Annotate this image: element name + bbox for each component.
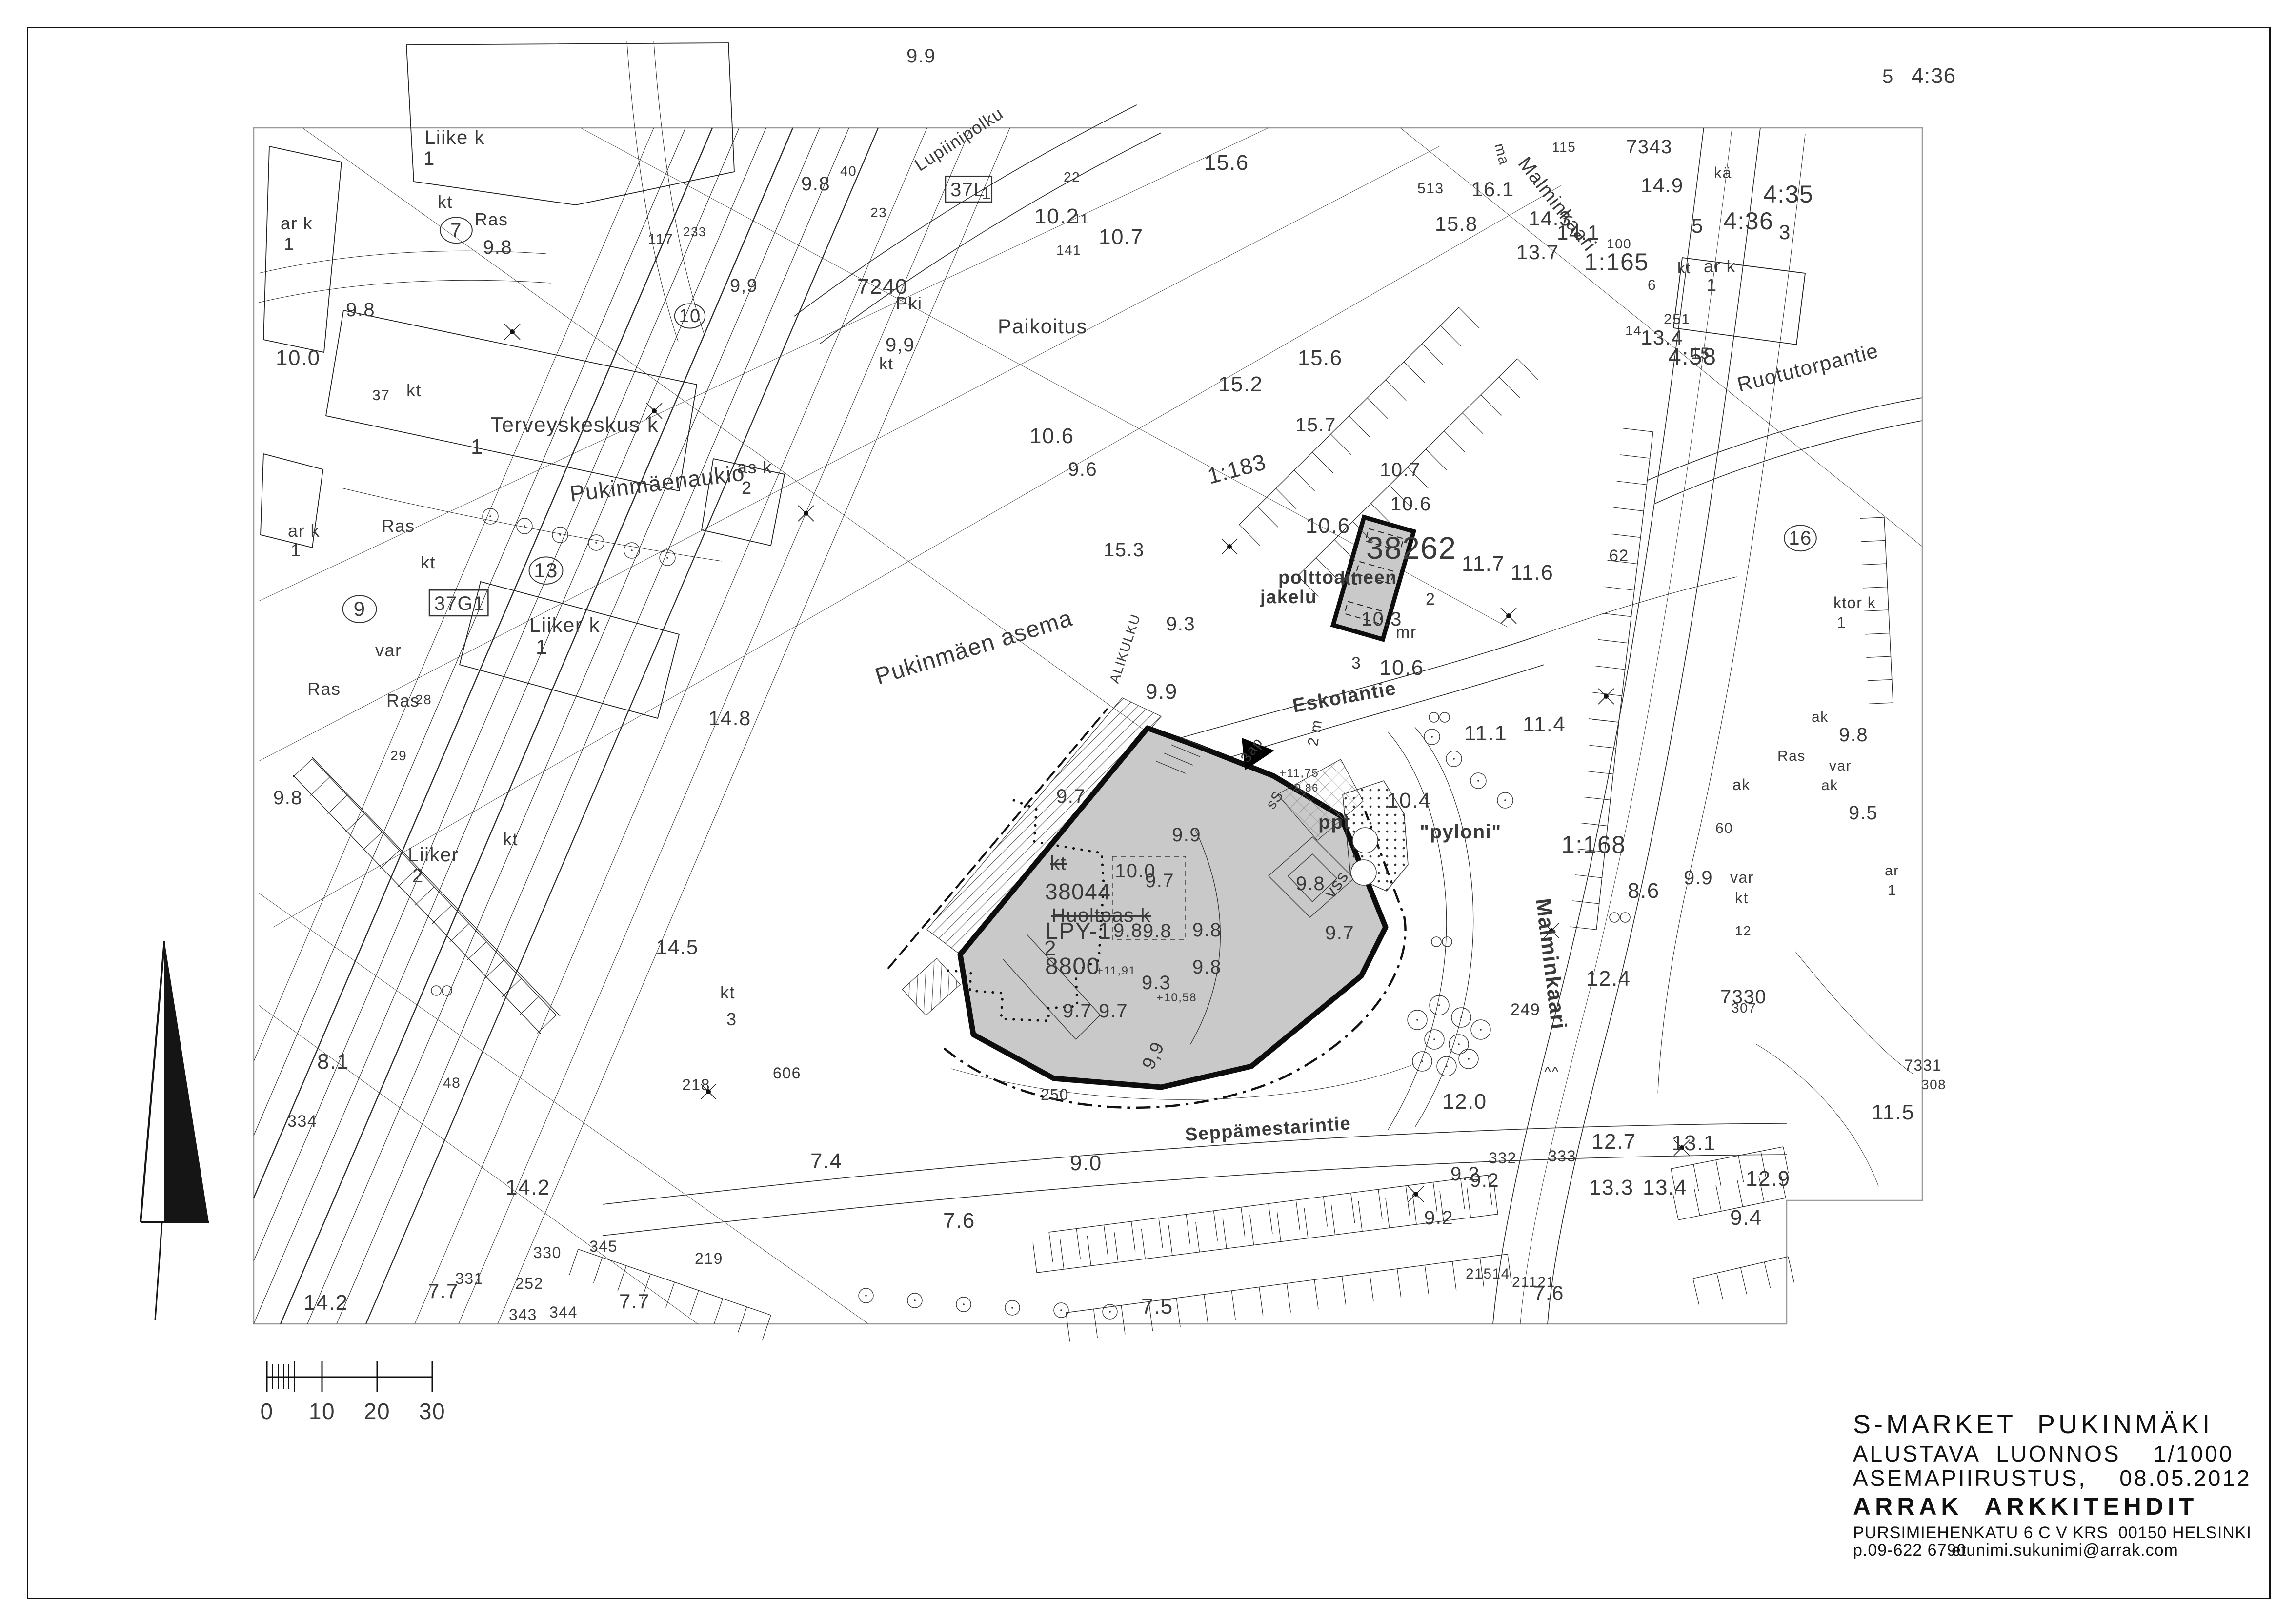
map-label: 29 [390,748,407,763]
svg-text:2: 2 [412,865,424,887]
map-label: 1 [982,184,991,203]
map-label: 10.7 [1380,459,1421,481]
svg-text:16: 16 [1789,528,1812,549]
svg-text:13: 13 [534,559,558,582]
svg-text:4:35: 4:35 [1763,181,1813,208]
svg-text:251: 251 [1664,311,1691,327]
svg-text:13.7: 13.7 [1516,241,1559,264]
firm-email: etunimi.sukunimi@arrak.com [1952,1541,2178,1560]
svg-text:kt: kt [1340,568,1358,589]
svg-text:ar k: ar k [288,521,320,541]
svg-text:kt: kt [1735,889,1749,907]
map-label: kt [1677,259,1691,277]
svg-text:11: 11 [1073,211,1089,226]
svg-text:11.4: 11.4 [1523,712,1566,736]
map-label: 37 [372,387,390,404]
svg-text:ktor k: ktor k [1833,594,1876,611]
svg-text:ar k: ar k [1704,256,1736,276]
map-label: 333 [1548,1147,1576,1165]
svg-text:7.6: 7.6 [1533,1281,1564,1304]
svg-text:9.7: 9.7 [1099,1000,1128,1022]
map-label: 9.8 [1192,956,1222,978]
map-label: 219 [695,1250,723,1267]
svg-text:8800: 8800 [1045,954,1100,979]
svg-text:115: 115 [1552,140,1576,155]
map-label: 5 [1692,214,1704,237]
map-label: 14 [1625,323,1642,338]
map-label: kt [1050,853,1067,874]
svg-text:9.8: 9.8 [1296,873,1325,894]
map-label: 7.5 [1141,1295,1173,1319]
svg-text:9,9: 9,9 [730,276,758,296]
map-label: ar k [1704,256,1736,276]
map-label: Ras [382,516,415,536]
svg-text:334: 334 [287,1112,317,1131]
svg-text:1: 1 [536,635,548,658]
svg-text:Ras: Ras [307,679,341,699]
map-label: 7 [440,217,472,243]
svg-text:mr: mr [1396,623,1417,642]
svg-text:2: 2 [1426,590,1435,609]
map-label: kt [1735,889,1749,907]
svg-text:1: 1 [291,540,302,560]
svg-text:7.7: 7.7 [619,1290,650,1313]
map-label: Pukinmäen asema [872,605,1076,690]
map-label: 1 [423,148,435,169]
map-label: Ras [307,679,341,699]
svg-text:11.6: 11.6 [1511,561,1553,585]
map-label: 331 [455,1270,483,1287]
map-label: 13 [529,557,563,584]
svg-text:38044: 38044 [1045,879,1111,904]
svg-text:9.5: 9.5 [1849,802,1878,824]
drawing-stage: ALUSTAVA LUONNOS 1/1000 [1853,1441,2234,1467]
map-label: 14.2 [505,1176,550,1199]
svg-text:8.6: 8.6 [1628,879,1660,903]
svg-text:var: var [375,640,402,660]
svg-text:48: 48 [443,1075,461,1091]
map-label: 38262 [1366,530,1456,566]
svg-text:9.9: 9.9 [1146,680,1178,704]
map-label: 10 [675,304,705,328]
map-label: 9.9 [1146,680,1178,704]
map-label: ktor k [1833,594,1876,611]
svg-text:9.0: 9.0 [1070,1151,1102,1175]
map-label: 12.7 [1591,1130,1636,1154]
svg-text:6: 6 [1648,277,1656,293]
svg-text:15.7: 15.7 [1295,414,1336,436]
svg-text:332: 332 [1489,1149,1517,1167]
map-label: 9.8 [273,787,302,809]
map-label: 16 [1784,525,1816,551]
svg-text:15.2: 15.2 [1218,372,1263,396]
map-label: 218 [682,1076,710,1094]
map-label: 13.4 [1643,1176,1688,1199]
svg-text:Liiker k: Liiker k [529,613,600,636]
svg-text:1: 1 [982,184,991,203]
svg-text:10.7: 10.7 [1380,459,1421,481]
map-label: 7.6 [1533,1281,1564,1304]
map-label: Liiker [408,844,459,866]
svg-text:250: 250 [1041,1086,1069,1103]
svg-text:9.9: 9.9 [1684,867,1713,889]
svg-text:11.1: 11.1 [1464,721,1507,745]
svg-text:9.8: 9.8 [273,787,302,809]
map-label: 8.1 [317,1050,349,1074]
map-label: 513 [1417,181,1444,197]
svg-text:ar: ar [1885,863,1899,879]
map-label: 9.9 [1172,824,1201,846]
svg-text:38262: 38262 [1366,530,1456,566]
map-label: 6 [1648,277,1656,293]
map-label: 8.6 [1628,879,1660,903]
svg-text:15: 15 [1691,345,1710,362]
svg-text:jakelu: jakelu [1260,587,1317,608]
map-label: 15 [1691,345,1710,362]
svg-text:10.2: 10.2 [1034,204,1079,228]
svg-text:7331: 7331 [1904,1056,1942,1074]
map-label: var [1829,758,1852,774]
drawing-sheet: 0102030 Liike k1ktRas79.89.810.0ar k137k… [0,0,2296,1624]
svg-text:7.7: 7.7 [428,1279,459,1302]
map-label: 2 [742,478,752,498]
map-label: Liike k [424,127,485,148]
map-label: mr [1396,623,1417,642]
svg-text:1: 1 [1888,882,1896,898]
svg-text:as k: as k [737,457,772,477]
svg-text:9.7: 9.7 [1325,922,1354,944]
svg-text:12.0: 12.0 [1442,1090,1487,1114]
svg-text:9.7: 9.7 [1145,870,1174,892]
map-label: 9,9 [730,276,758,296]
svg-text:14: 14 [1625,323,1642,338]
svg-text:513: 513 [1417,181,1444,197]
map-label: 15.3 [1104,539,1145,561]
map-label: 1 [284,234,295,254]
map-label: 9.8 [483,237,512,258]
svg-text:14.8: 14.8 [708,707,751,730]
svg-text:+11,75: +11,75 [1279,767,1319,780]
svg-text:331: 331 [455,1270,483,1287]
scale-label: 10 [309,1399,335,1424]
svg-text:1: 1 [471,435,483,459]
svg-text:7.6: 7.6 [943,1209,975,1233]
map-label: 16.1 [1471,178,1514,201]
svg-text:333: 333 [1548,1147,1576,1165]
svg-text:+10,58: +10,58 [1156,991,1197,1004]
svg-text:28: 28 [415,692,432,707]
svg-text:307: 307 [1732,1000,1756,1015]
map-label: 115 [1552,140,1576,155]
svg-text:1:165: 1:165 [1584,248,1649,276]
map-label: Lupiinipolku [911,103,1007,175]
svg-text:343: 343 [509,1306,537,1323]
map-label: 15.2 [1218,372,1263,396]
svg-text:9.8: 9.8 [1143,920,1172,942]
svg-text:606: 606 [773,1064,801,1082]
firm-address: PURSIMIEHENKATU 6 C V KRS 00150 HELSINKI [1853,1523,2252,1543]
svg-text:8.1: 8.1 [317,1050,349,1074]
map-label: Pki [896,293,923,313]
north-arrow [141,941,209,1320]
map-label: 13.7 [1516,241,1559,264]
map-label: 12 [1735,923,1752,938]
map-label: 13.3 [1589,1176,1634,1199]
map-label: 344 [549,1303,578,1321]
site-plan-map: 0102030 Liike k1ktRas79.89.810.0ar k137k… [0,0,2296,1624]
svg-text:ma: ma [1491,142,1512,167]
map-label: 9.8 [801,173,830,195]
svg-text:9.9: 9.9 [1172,824,1201,846]
map-label: 28 [415,692,432,707]
map-label: 7.7 [619,1290,650,1313]
svg-text:Terveyskeskus k: Terveyskeskus k [490,413,659,437]
map-label: 252 [515,1275,544,1292]
map-label: 606 [773,1064,801,1082]
svg-text:14.5: 14.5 [656,935,699,958]
svg-text:9.8: 9.8 [1113,920,1143,941]
map-label: 334 [287,1112,317,1131]
svg-text:9.9: 9.9 [906,45,936,67]
svg-text:15.6: 15.6 [1298,346,1343,370]
map-label: 3 [1351,654,1361,672]
svg-text:var: var [1730,869,1754,886]
svg-text:Liiker: Liiker [408,844,459,866]
svg-text:7: 7 [450,220,462,241]
map-label: 1:183 [1205,449,1269,489]
map-label: 1:165 [1584,248,1649,276]
map-label: 14.8 [708,707,751,730]
svg-text:5: 5 [1692,214,1704,237]
map-label: 9.3 [1142,972,1171,994]
svg-text:kt: kt [503,829,518,849]
map-label: 7343 [1626,136,1672,158]
map-label: Ras [475,209,508,229]
map-label: 9.2 [1470,1170,1499,1191]
map-label: 9.2 [1424,1207,1453,1229]
project-title: S-MARKET PUKINMÄKI [1853,1409,2213,1440]
map-label: 9.9 [1684,867,1713,889]
svg-text:polttoaineen: polttoaineen [1278,568,1397,588]
map-label: 12.4 [1586,967,1631,991]
map-label: 2 [1426,590,1435,609]
map-label: 343 [509,1306,537,1323]
map-label: Ruotutorpantie [1735,339,1881,396]
map-label: 141 [1056,243,1081,258]
map-label: 307 [1732,1000,1756,1015]
svg-text:218: 218 [682,1076,710,1094]
map-label: 15.6 [1298,346,1343,370]
svg-text:"pyloni": "pyloni" [1420,821,1502,843]
map-label: 9,9 [886,334,915,356]
svg-text:ar k: ar k [281,213,313,233]
svg-text:1: 1 [423,148,435,169]
map-label: 12.0 [1442,1090,1487,1114]
svg-text:5: 5 [1882,66,1894,87]
map-label: 9.6 [1068,459,1097,480]
map-label: 9.3 [1166,613,1195,635]
svg-text:15.8: 15.8 [1435,212,1478,235]
map-label: 1 [536,635,548,658]
svg-text:308: 308 [1921,1077,1946,1092]
map-label: var [1730,869,1754,886]
map-label: 7.7 [428,1279,459,1302]
svg-text:3: 3 [726,1009,737,1029]
svg-text:9.2: 9.2 [1470,1170,1499,1191]
map-label: 5 [1882,66,1894,87]
map-label: Seppämestarintie [1185,1113,1352,1145]
svg-text:252: 252 [515,1275,544,1292]
svg-text:kt: kt [421,552,436,572]
map-label: 14.2 [303,1291,348,1315]
svg-text:15.3: 15.3 [1104,539,1145,561]
svg-text:1: 1 [1837,614,1846,631]
svg-text:9.4: 9.4 [1730,1206,1762,1230]
svg-text:Paikoitus: Paikoitus [998,315,1088,338]
svg-text:2 m: 2 m [1305,718,1325,747]
svg-text:9.8: 9.8 [1192,919,1222,941]
map-label: ALIKULKU [1107,612,1143,685]
svg-text:100: 100 [1607,236,1631,251]
svg-text:ppt: ppt [1318,812,1351,833]
map-label: as k [737,457,772,477]
map-label: Eskolantie [1291,677,1398,717]
map-label: 11.5 [1872,1100,1914,1124]
map-label: kt [406,380,422,400]
svg-text:330: 330 [533,1244,562,1261]
map-label: 15.7 [1295,414,1336,436]
map-label: 10.6 [1029,424,1074,448]
svg-text:Pki: Pki [896,293,923,313]
map-label: 100 [1607,236,1631,251]
map-label: kä [1714,164,1732,182]
map-label: 11 [1073,211,1089,226]
map-label: 4:36 [1912,64,1956,88]
svg-text:Pukinmäen asema: Pukinmäen asema [872,605,1076,690]
svg-text:1:168: 1:168 [1561,831,1626,858]
svg-text:Liike k: Liike k [424,127,485,148]
map-label: 15.6 [1204,151,1249,175]
svg-text:+11,91: +11,91 [1096,964,1136,977]
map-label: 10.7 [1099,225,1144,249]
svg-text:kt: kt [438,192,453,212]
map-label: 7.4 [810,1149,843,1173]
map-label: 1 [471,435,483,459]
svg-text:ak: ak [1732,776,1751,793]
map-label: 251 [1664,311,1691,327]
svg-text:13.4: 13.4 [1643,1176,1688,1199]
map-label: 9.86 [1295,782,1319,794]
map-label: 250 [1041,1086,1069,1103]
map-label: 11.7 [1462,552,1505,576]
svg-text:10.0: 10.0 [276,346,321,370]
svg-text:1: 1 [1707,275,1717,295]
map-label: 11.1 [1464,721,1507,745]
svg-text:10.6: 10.6 [1029,424,1074,448]
map-label: 8800 [1045,954,1100,979]
svg-text:344: 344 [549,1303,578,1321]
map-label: 3 [1779,221,1791,244]
svg-text:Seppämestarintie: Seppämestarintie [1185,1113,1352,1145]
svg-text:4:36: 4:36 [1723,207,1773,235]
map-label: +10,58 [1156,991,1197,1004]
svg-text:14.9: 14.9 [1641,174,1684,197]
map-label: 4:36 [1723,207,1773,235]
svg-text:ak: ak [1812,709,1829,725]
map-label: ak [1812,709,1829,725]
map-label: 9.7 [1056,786,1086,807]
svg-text:233: 233 [683,224,706,239]
svg-text:10.4: 10.4 [1387,789,1431,812]
svg-text:Lupiinipolku: Lupiinipolku [911,103,1007,175]
svg-text:9.8: 9.8 [801,173,830,195]
map-label: 9.7 [1099,1000,1128,1022]
map-label: 14.5 [656,935,699,958]
map-label: 9.8 [1839,724,1868,746]
svg-text:10.7: 10.7 [1099,225,1144,249]
map-label: 62 [1609,547,1629,565]
firm-phone: p.09-622 6790 [1853,1541,1966,1560]
scale-bar [267,1361,432,1392]
svg-text:117: 117 [648,231,673,247]
svg-text:12.4: 12.4 [1586,967,1631,991]
map-label: 9.8 [1143,920,1172,942]
map-label: 233 [683,224,706,239]
map-label: 9.8 [346,299,375,321]
map-label: 9.8 [1192,919,1222,941]
svg-text:ALIKULKU: ALIKULKU [1107,612,1143,685]
svg-text:7343: 7343 [1626,136,1672,158]
svg-text:Ras: Ras [382,516,415,536]
drawing-type-date: ASEMAPIIRUSTUS, 08.05.2012 [1853,1465,2252,1491]
map-label: 7331 [1904,1056,1942,1074]
svg-text:62: 62 [1609,547,1629,565]
map-label: 10.4 [1387,789,1431,812]
svg-text:10.6: 10.6 [1379,656,1424,680]
svg-text:345: 345 [589,1238,618,1255]
svg-text:29: 29 [390,748,407,763]
svg-text:9.8: 9.8 [1192,956,1222,978]
svg-text:^^: ^^ [1544,1064,1559,1080]
map-label: 1 [291,540,302,560]
map-label: 22 [1064,169,1080,184]
svg-text:37: 37 [372,387,390,404]
map-label: 40 [840,163,857,179]
map-label: 1 [1888,882,1896,898]
svg-text:16.1: 16.1 [1471,178,1514,201]
svg-text:kt: kt [406,380,422,400]
svg-text:11.5: 11.5 [1872,1100,1914,1124]
map-label: kt [720,982,735,1002]
map-label: 4:35 [1763,181,1813,208]
svg-text:13.1: 13.1 [1672,1131,1716,1155]
scale-label: 0 [260,1399,273,1424]
svg-text:9.7: 9.7 [1063,1000,1092,1022]
svg-text:11.7: 11.7 [1462,552,1505,576]
map-label: "pyloni" [1420,821,1502,843]
map-label: jakelu [1260,587,1317,608]
svg-text:10.6: 10.6 [1390,493,1431,515]
svg-text:kt: kt [1677,259,1691,277]
svg-text:141: 141 [1056,243,1081,258]
svg-text:kt: kt [879,355,893,373]
svg-text:9.2: 9.2 [1424,1207,1453,1229]
map-label: 1 [1707,275,1717,295]
map-label: kt [879,355,893,373]
map-label: ar k [281,213,313,233]
svg-text:3: 3 [1351,654,1361,672]
svg-text:9,9: 9,9 [886,334,915,356]
